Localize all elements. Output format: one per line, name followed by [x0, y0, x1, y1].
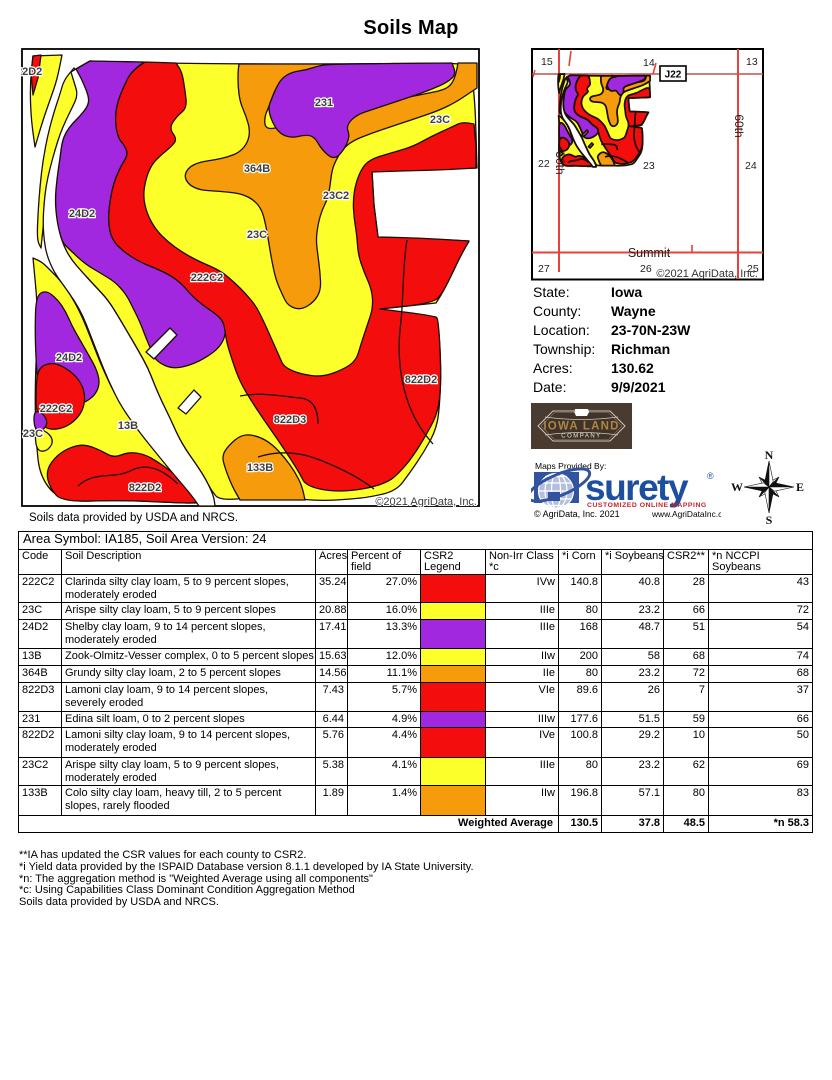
svg-text:© AgriData, Inc. 2021: © AgriData, Inc. 2021 — [534, 509, 620, 519]
svg-text:Summit: Summit — [628, 246, 671, 260]
svg-text:©2021 AgriData, Inc.: ©2021 AgriData, Inc. — [375, 496, 477, 507]
svg-text:222C2: 222C2 — [191, 272, 223, 284]
svg-text:14: 14 — [643, 57, 655, 69]
svg-text:822D3: 822D3 — [274, 414, 306, 426]
svg-text:822D2: 822D2 — [129, 482, 161, 494]
svg-text:©2021 AgriData, Inc.: ©2021 AgriData, Inc. — [656, 268, 758, 280]
svg-text:231: 231 — [315, 97, 333, 109]
svg-text:N: N — [765, 450, 774, 462]
svg-text:E: E — [796, 480, 804, 494]
svg-text:822D2: 822D2 — [405, 374, 437, 386]
svg-text:COMPANY: COMPANY — [561, 434, 601, 440]
svg-text:22: 22 — [538, 158, 550, 170]
svg-text:13B: 13B — [118, 420, 138, 432]
svg-text:24D2: 24D2 — [69, 208, 95, 220]
svg-text:23C: 23C — [247, 229, 267, 241]
svg-text:222C2: 222C2 — [40, 403, 72, 415]
svg-text:60th: 60th — [732, 114, 746, 137]
svg-text:133B: 133B — [247, 462, 273, 474]
svg-text:22D2: 22D2 — [21, 66, 42, 78]
svg-text:IOWA LAND: IOWA LAND — [543, 421, 619, 433]
svg-text:J22: J22 — [665, 70, 682, 81]
svg-text:23C2: 23C2 — [323, 190, 349, 202]
svg-text:W: W — [731, 480, 743, 494]
svg-text:27: 27 — [538, 263, 550, 275]
svg-text:23: 23 — [643, 160, 655, 172]
svg-text:364B: 364B — [244, 163, 270, 175]
svg-text:23C: 23C — [23, 428, 43, 440]
svg-text:www.AgriDataInc.com: www.AgriDataInc.com — [651, 509, 721, 519]
svg-text:24D2: 24D2 — [56, 352, 82, 364]
svg-text:15: 15 — [541, 56, 553, 68]
svg-text:®: ® — [707, 471, 714, 481]
svg-text:24: 24 — [745, 160, 757, 172]
svg-text:50th: 50th — [553, 151, 567, 174]
svg-text:13: 13 — [746, 56, 758, 68]
svg-text:23C: 23C — [430, 114, 450, 126]
svg-text:CUSTOMIZED ONLINE MAPPING: CUSTOMIZED ONLINE MAPPING — [587, 502, 707, 509]
svg-text:S: S — [766, 513, 773, 526]
svg-text:26: 26 — [640, 263, 652, 275]
